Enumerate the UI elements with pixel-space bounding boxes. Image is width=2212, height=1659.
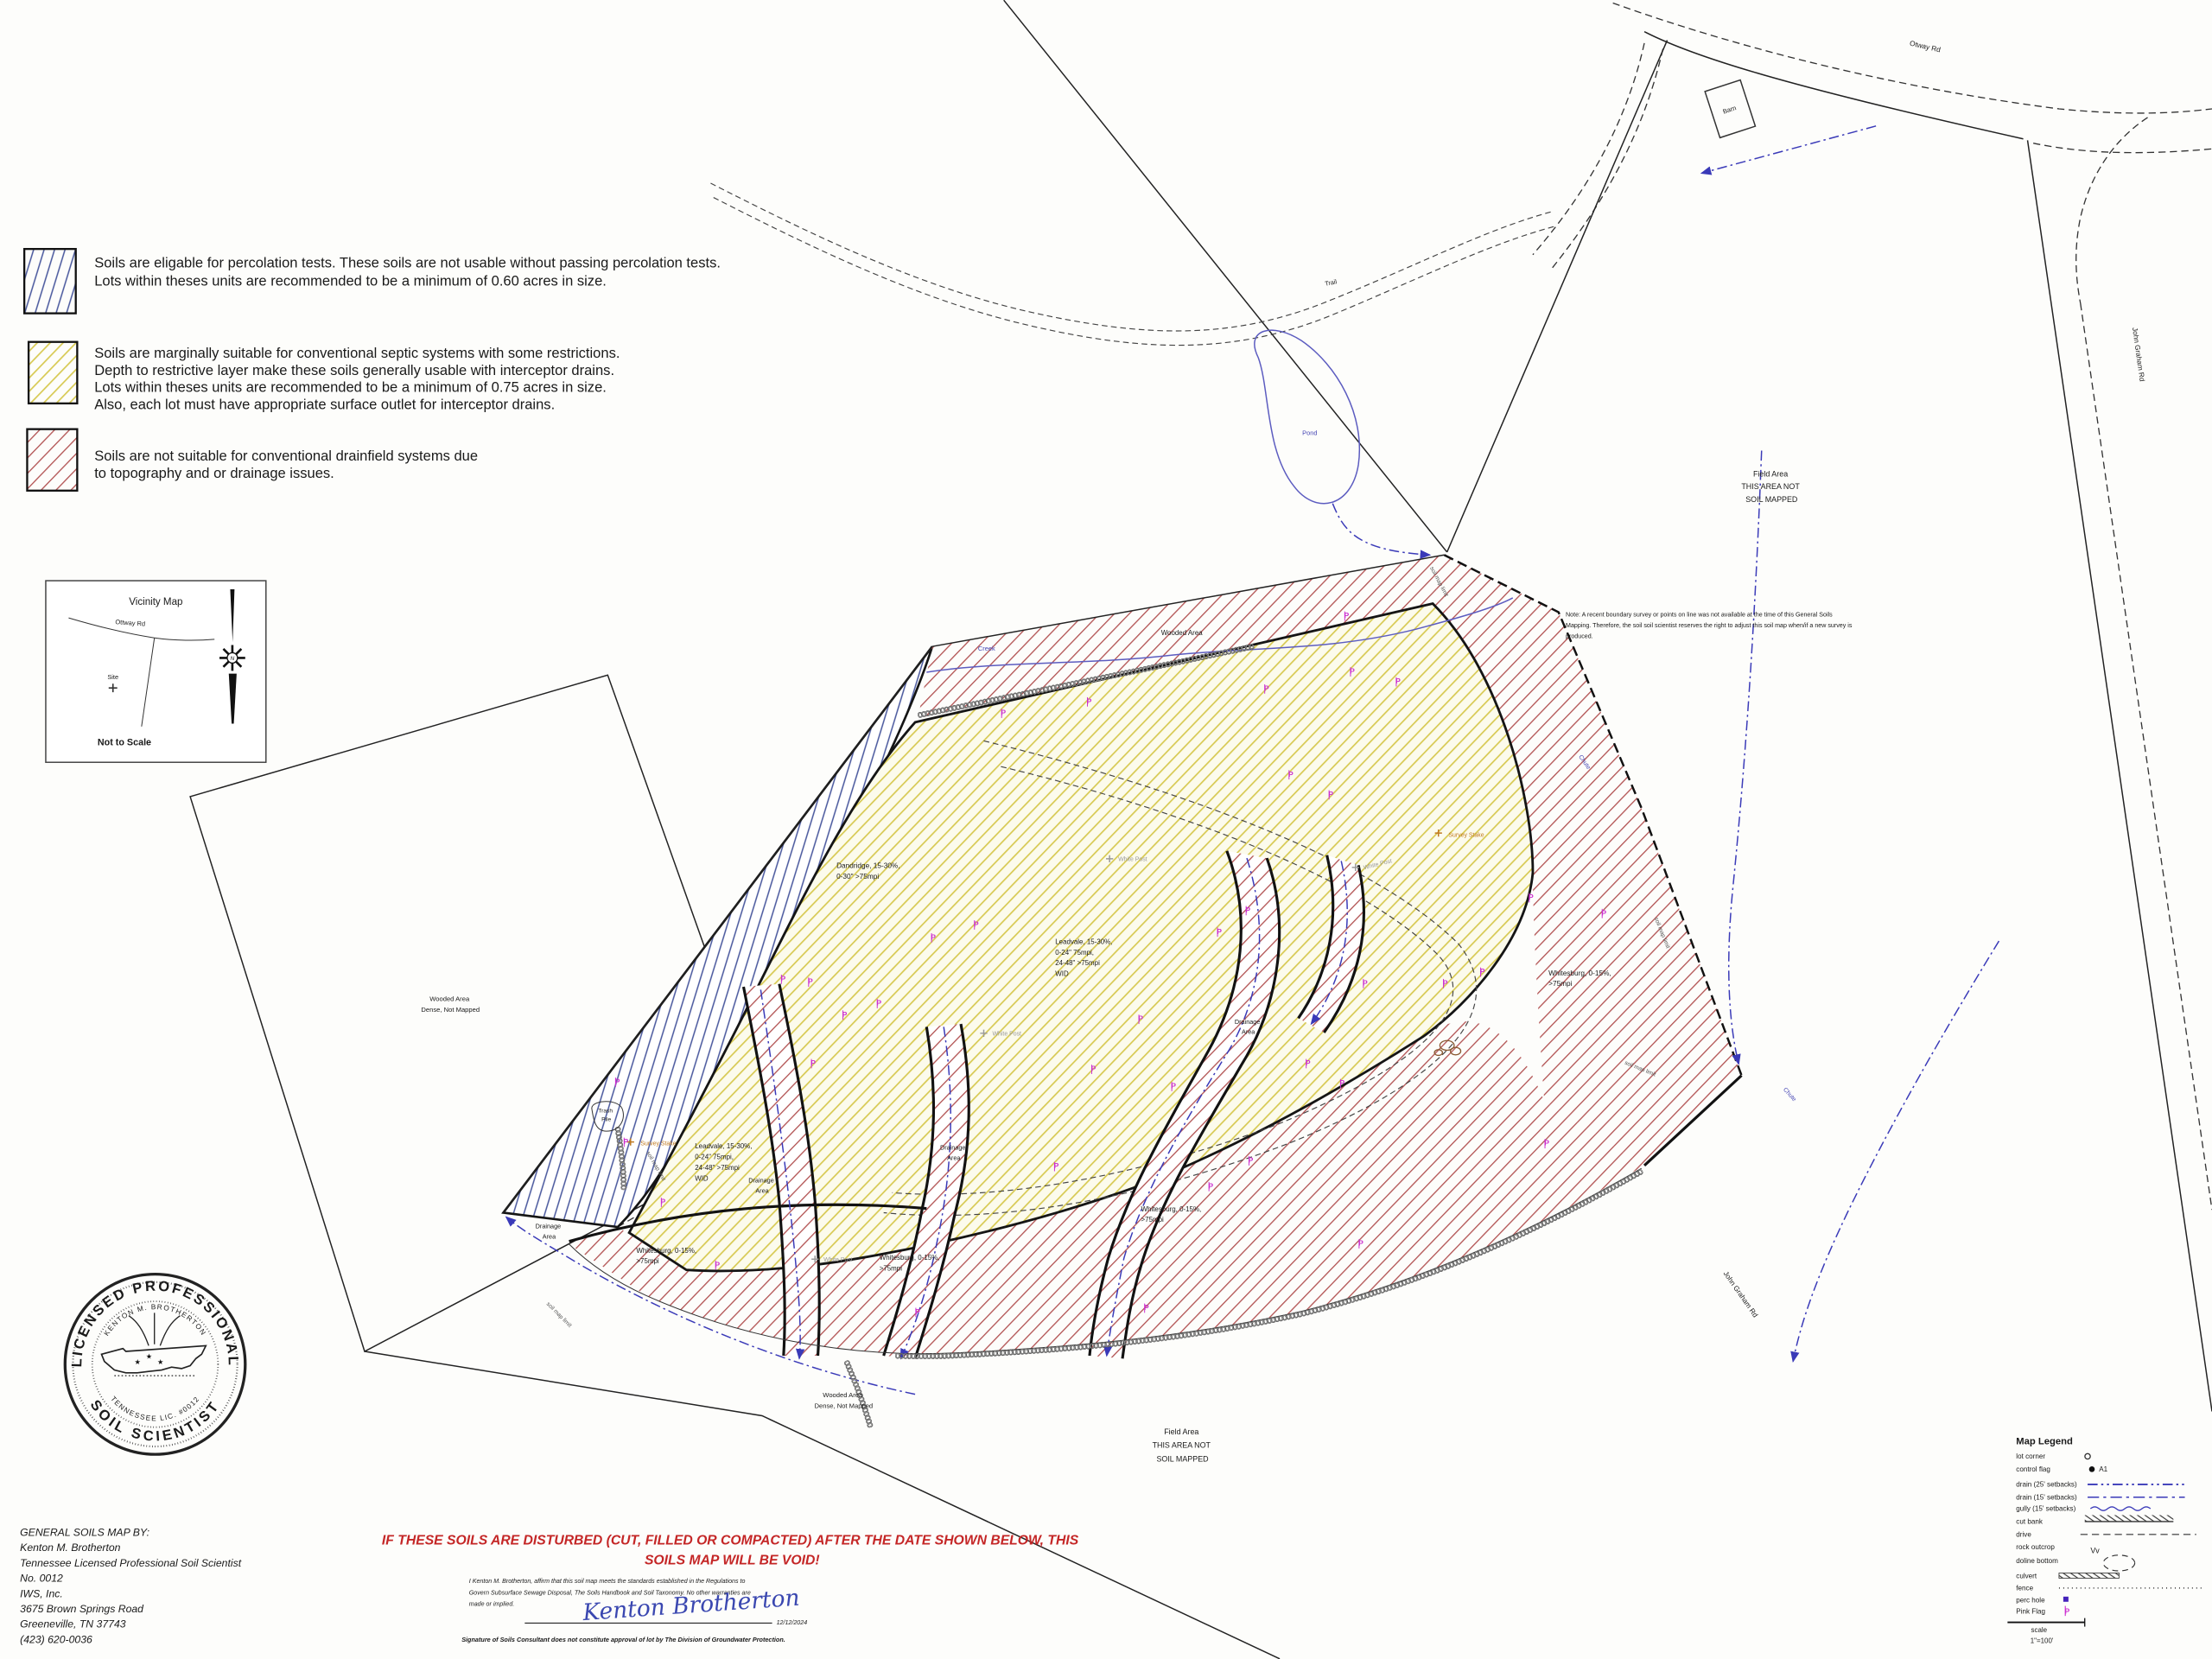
pink-flag-marker: P xyxy=(1264,683,1269,692)
legend-row-perc-hole: perc hole xyxy=(2016,1596,2045,1604)
lot-corner-symbol xyxy=(2085,1453,2090,1459)
creek-label: Creek xyxy=(978,645,995,652)
otway-road-dashed-edge xyxy=(1613,3,2212,113)
legend-row-rock-outcrop: rock outcrop xyxy=(2016,1543,2055,1551)
pink-flag-marker: P xyxy=(1245,906,1250,914)
seal-star: ★ xyxy=(135,1357,141,1366)
legend-text-blue: Soils are eligable for percolation tests… xyxy=(94,255,724,289)
soil-legend: Soils are eligable for percolation tests… xyxy=(24,249,724,491)
pink-flag-marker: P xyxy=(842,1010,848,1019)
tennessee-outline xyxy=(101,1345,206,1372)
pink-flag-marker: P xyxy=(1529,893,1534,901)
legend-row-drive: drive xyxy=(2016,1530,2031,1538)
legend-row-drain25: drain (25' setbacks) xyxy=(2016,1480,2077,1488)
legend-row-doline: doline bottom xyxy=(2016,1557,2058,1565)
pink-flag-marker: P xyxy=(1363,978,1368,987)
pink-flag-marker: P xyxy=(1480,967,1485,976)
legend-row-cut-bank: cut bank xyxy=(2016,1517,2044,1525)
pink-flag-symbol: P xyxy=(2065,1606,2070,1617)
pink-flag-marker: P xyxy=(1350,667,1355,676)
legend-text-red: Soils are not suitable for conventional … xyxy=(94,448,481,481)
legend-row-pink-flag: Pink Flag xyxy=(2016,1608,2045,1616)
credits-block: GENERAL SOILS MAP BY: Kenton M. Brothert… xyxy=(20,1526,244,1645)
perc-hole-symbol xyxy=(2063,1597,2069,1602)
john-graham-rd-label-2: John Graham Rd xyxy=(1722,1270,1760,1319)
wooded-area-label: Wooded Area xyxy=(1161,629,1204,637)
pond-outlet-drain xyxy=(1332,504,1430,556)
pink-flag-marker: P xyxy=(1601,908,1606,917)
drain-arrow-north xyxy=(1701,126,1876,174)
seal-star: ★ xyxy=(157,1357,163,1366)
signature-date: 12/12/2024 xyxy=(777,1619,808,1626)
warning-block: IF THESE SOILS ARE DISTURBED (CUT, FILLE… xyxy=(382,1533,1083,1643)
otway-rd-label: Otway Rd xyxy=(1909,40,1942,54)
disclaimer-text: Signature of Soils Consultant does not c… xyxy=(461,1636,785,1643)
pink-flag-marker: P xyxy=(931,932,936,941)
seal-ring-top-text: LICENSED PROFESSIONAL xyxy=(68,1277,242,1367)
vicinity-title: Vicinity Map xyxy=(129,597,182,607)
vicinity-site-label: Site xyxy=(107,673,118,681)
doline-symbol xyxy=(2103,1555,2134,1571)
gully-symbol xyxy=(2090,1507,2151,1510)
pink-flag-marker: P xyxy=(661,1198,666,1206)
pink-flag-marker: P xyxy=(715,1260,720,1268)
pink-flag-marker: P xyxy=(1288,770,1294,779)
legend-row-fence: fence xyxy=(2016,1584,2033,1592)
pink-flag-marker: P xyxy=(1249,1156,1254,1165)
pink-flag-marker: P xyxy=(1217,927,1222,936)
map-legend: Map Legend lot corner control flag A1 dr… xyxy=(2007,1437,2202,1645)
field-north-boundary xyxy=(1447,41,1668,552)
seal-star: ★ xyxy=(146,1351,152,1360)
pink-flag-marker: P xyxy=(1344,611,1350,620)
pink-flag-marker: P xyxy=(1395,677,1401,685)
culvert-symbol xyxy=(2059,1573,2120,1579)
pink-flag-marker: P xyxy=(623,1137,628,1146)
pink-flag-marker: P xyxy=(810,1058,816,1067)
barn-driveway-dashed xyxy=(1533,43,1663,269)
drainage-area-label-4: Drainage Area xyxy=(536,1223,563,1241)
vicinity-scale-note: Not to Scale xyxy=(98,737,151,747)
pink-flag-marker: P xyxy=(1138,1014,1143,1023)
john-graham-rd-label: John Graham Rd xyxy=(2131,327,2146,382)
pink-flag-marker: P xyxy=(1340,1078,1345,1087)
white-post-label-1: White Post xyxy=(1118,856,1147,862)
legend-row-gully: gully (15' setbacks) xyxy=(2016,1505,2075,1513)
map-legend-title: Map Legend xyxy=(2016,1437,2073,1447)
john-graham-road-edge xyxy=(2028,140,2212,1411)
pink-flag-marker: P xyxy=(1171,1082,1176,1090)
vicinity-map: Vicinity Map Ottway Rd Site Not to Scale… xyxy=(46,581,266,762)
white-post-label-3: White Post xyxy=(992,1031,1021,1037)
legend-row-drain15: drain (15' setbacks) xyxy=(2016,1493,2077,1501)
field-west-boundary xyxy=(1004,0,1447,552)
compass-north-label: N xyxy=(231,656,235,662)
seal-inner-bottom-text: TENNESSEE LIC. #0012 xyxy=(109,1395,201,1422)
pink-flag-marker: P xyxy=(1144,1303,1149,1312)
road-corner-dashed xyxy=(2076,118,2148,303)
pink-flag-marker: P xyxy=(781,974,786,982)
pink-flag-marker: P xyxy=(1306,1058,1311,1067)
rock-outcrop-symbol: Vv xyxy=(2090,1546,2100,1554)
drain-east xyxy=(1729,450,1762,1064)
drain-southeast xyxy=(1793,941,1999,1362)
soils-map-page: oooooooooooooooooooooooooooooooooooooooo… xyxy=(0,0,2212,1659)
legend-text-yellow: Soils are marginally suitable for conven… xyxy=(94,345,624,413)
chute-label-2: Chute xyxy=(1782,1087,1797,1103)
pink-flag-marker: P xyxy=(1091,1065,1096,1073)
white-post-label-4: White Post xyxy=(823,1257,853,1263)
pink-flag-marker: P xyxy=(1208,1181,1213,1190)
otway-road-dashed-south xyxy=(2033,143,2212,153)
legend-swatch-red xyxy=(27,429,77,491)
scale-label: scale xyxy=(2031,1626,2048,1634)
pink-flag-marker: P xyxy=(1328,790,1333,798)
pink-flag-marker: P xyxy=(1001,709,1006,717)
pink-flag-marker: P xyxy=(974,920,979,929)
barn-label: Barn xyxy=(1722,104,1738,115)
wooded-dense-label-west: Wooded Area Dense, Not Mapped xyxy=(421,995,480,1014)
pond-label: Pond xyxy=(1302,429,1317,436)
seal-plant xyxy=(114,1313,194,1376)
otway-road-edge xyxy=(1644,32,2024,139)
control-flag-id: A1 xyxy=(2099,1465,2107,1473)
pink-flag-marker: P xyxy=(1544,1139,1549,1147)
pink-flag-marker: P xyxy=(615,1077,620,1086)
professional-seal: LICENSED PROFESSIONAL SOIL SCIENTIST KEN… xyxy=(65,1274,245,1455)
soil-map-limit-label-5: soil map limit xyxy=(545,1301,573,1329)
pink-flag-marker: P xyxy=(1443,978,1448,987)
pond-outline xyxy=(1255,330,1360,504)
svg-text:P: P xyxy=(2065,1607,2070,1616)
control-flag-symbol xyxy=(2089,1466,2095,1472)
credits-text: GENERAL SOILS MAP BY: Kenton M. Brothert… xyxy=(20,1526,244,1645)
seal-inner-ring xyxy=(92,1301,219,1427)
legend-scale: scale 1"=100' xyxy=(2007,1618,2084,1645)
pink-flag-marker: P xyxy=(1087,696,1092,705)
scale-value: 1"=100' xyxy=(2031,1637,2054,1645)
pink-flag-marker: P xyxy=(915,1307,920,1316)
survey-note: Note: A recent boundary survey or points… xyxy=(1566,611,1853,639)
field-area-label-bottom: Field Area THIS AREA NOT SOIL MAPPED xyxy=(1153,1427,1213,1463)
legend-row-culvert: culvert xyxy=(2016,1572,2037,1580)
john-graham-road-dashed-edge xyxy=(2081,303,2212,1210)
survey-stake-label-1: Survey Stake xyxy=(1448,832,1484,838)
trail-path xyxy=(710,183,1555,346)
legend-swatch-yellow xyxy=(29,342,77,404)
legend-row-lot-corner: lot corner xyxy=(2016,1452,2045,1460)
seal-stars: ★★★ xyxy=(135,1351,164,1366)
trail-label: Trail xyxy=(1324,277,1338,288)
survey-stake-label-2: Survey Stake xyxy=(640,1141,676,1147)
cut-bank-legend-symbol xyxy=(2085,1515,2174,1521)
seal-inner-top-text: KENTON M. BROTHERTON xyxy=(103,1303,208,1338)
legend-swatch-blue xyxy=(24,249,76,313)
pink-flag-marker: P xyxy=(876,999,881,1007)
legend-row-control-flag: control flag xyxy=(2016,1465,2050,1473)
field-area-label-right: Field Area THIS AREA NOT SOIL MAPPED xyxy=(1741,469,1802,504)
pink-flag-marker: P xyxy=(1358,1239,1363,1248)
pink-flag-marker: P xyxy=(808,977,813,986)
warning-text: IF THESE SOILS ARE DISTURBED (CUT, FILLE… xyxy=(382,1533,1083,1567)
pink-flag-marker: P xyxy=(1054,1161,1059,1170)
soils-map-canvas: oooooooooooooooooooooooooooooooooooooooo… xyxy=(0,0,2212,1659)
map-legend-rows: lot corner control flag A1 drain (25' se… xyxy=(2016,1452,2202,1616)
